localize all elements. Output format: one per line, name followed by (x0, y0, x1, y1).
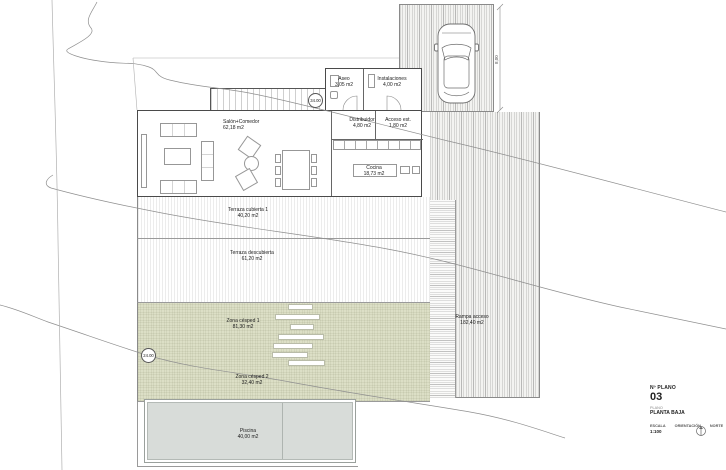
zone-label-piscina: Piscina 40,00 m2 (238, 428, 259, 440)
plot-edge-bottom (137, 466, 358, 467)
wc-services-block (325, 68, 422, 111)
wc-partition (363, 69, 364, 110)
sofa-top (160, 123, 197, 137)
open-terrace (137, 238, 430, 302)
dimension-value: 8,00 (494, 55, 499, 64)
ramp-tread-band (430, 200, 456, 398)
zone-label-cesped-2: Zona césped 2 32,40 m2 (235, 374, 268, 386)
plot-boundary-left (52, 0, 62, 470)
equipment-unit (368, 74, 375, 88)
zone-label-cesped-1: Zona césped 1 81,30 m2 (226, 318, 259, 330)
sofa-bottom (160, 180, 197, 194)
room-label-salon: Salón+Comedor 62,18 m2 (223, 119, 259, 131)
side-sofa (201, 141, 214, 181)
grass-step-slat (273, 343, 313, 349)
grass-step-slat (272, 352, 308, 358)
dining-table (282, 150, 310, 190)
zone-label-terraza-descubierta: Terraza descubierta 61,20 m2 (230, 250, 274, 262)
pool-lane-line (282, 403, 283, 459)
level-value: 34.00 (310, 98, 320, 103)
level-marker-stair: 34.00 (308, 93, 323, 108)
north-label: NORTE (710, 424, 723, 428)
room-label-distribuidor: Distribuidor 4,80 m2 (349, 117, 374, 129)
dining-chair (275, 166, 281, 175)
grass-step-slat (290, 324, 314, 330)
dining-chair (311, 154, 317, 163)
floor-plan-canvas: 8,00 34.00 24.00 Salón+Comedor 62,18 m2 … (0, 0, 726, 470)
dimension-line (497, 4, 503, 113)
partition-kitchen (331, 111, 332, 196)
orientation-label: ORIENTACIÓN (675, 424, 701, 428)
grass-step-slat (288, 304, 313, 310)
level-value: 24.00 (143, 353, 153, 358)
grass-step-slat (275, 314, 320, 320)
title-block: Nº PLANO 03 PLANO PLANTA BAJA ESCALA 1:1… (650, 385, 722, 434)
partition-vestibule (375, 111, 376, 139)
washbasin (330, 91, 338, 99)
grass-step-slat (278, 334, 324, 340)
plan-name: PLANTA BAJA (650, 410, 722, 416)
zone-label-rampa: Rampa acceso 182,40 m2 (455, 314, 488, 326)
dining-chair (311, 166, 317, 175)
plan-number: 03 (650, 391, 722, 403)
lounge-chair-2 (235, 168, 258, 191)
grass-step-slat (288, 360, 325, 366)
room-label-acceso: Acceso est. 1,80 m2 (385, 117, 411, 129)
room-label-instalaciones: Instalaciones 4,00 m2 (377, 76, 406, 88)
room-label-aseo: Aseo 3,05 m2 (335, 76, 353, 88)
covered-terrace (137, 197, 430, 238)
room-label-cocina: Cocina 18,73 m2 (364, 165, 385, 177)
dining-chair (275, 178, 281, 187)
plot-edge-left-bottom (137, 402, 138, 466)
scale-label: ESCALA (650, 424, 666, 428)
kitchen-sink (400, 166, 410, 174)
kitchen-hob (412, 166, 420, 174)
wall-shelf (141, 134, 147, 188)
kitchen-counter (333, 140, 421, 150)
zone-label-terraza-cubierta: Terraza cubierta 1 40,20 m2 (228, 207, 268, 219)
dining-chair (275, 154, 281, 163)
living-block (137, 110, 422, 197)
level-marker-garden: 24.00 (141, 348, 156, 363)
coffee-table (164, 148, 191, 165)
scale-value: 1:100 (650, 429, 666, 434)
dining-chair (311, 178, 317, 187)
